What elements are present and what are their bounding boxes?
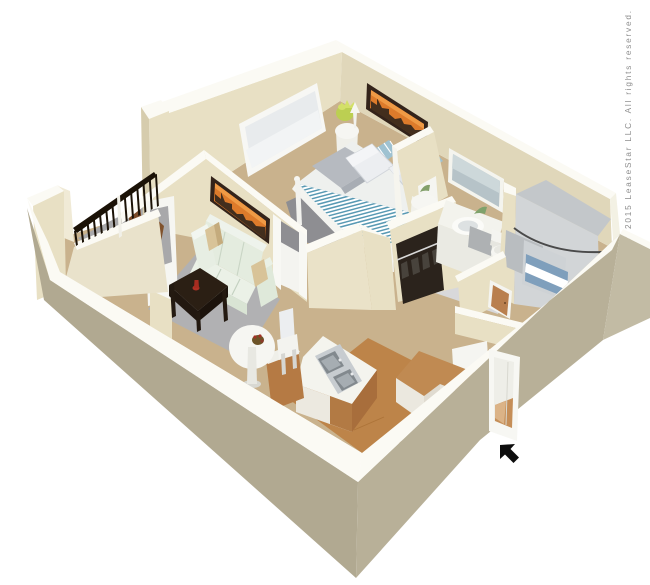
svg-text:© 2015 LeaseStar LLC. All righ: © 2015 LeaseStar LLC. All rights reserve…	[624, 11, 633, 241]
